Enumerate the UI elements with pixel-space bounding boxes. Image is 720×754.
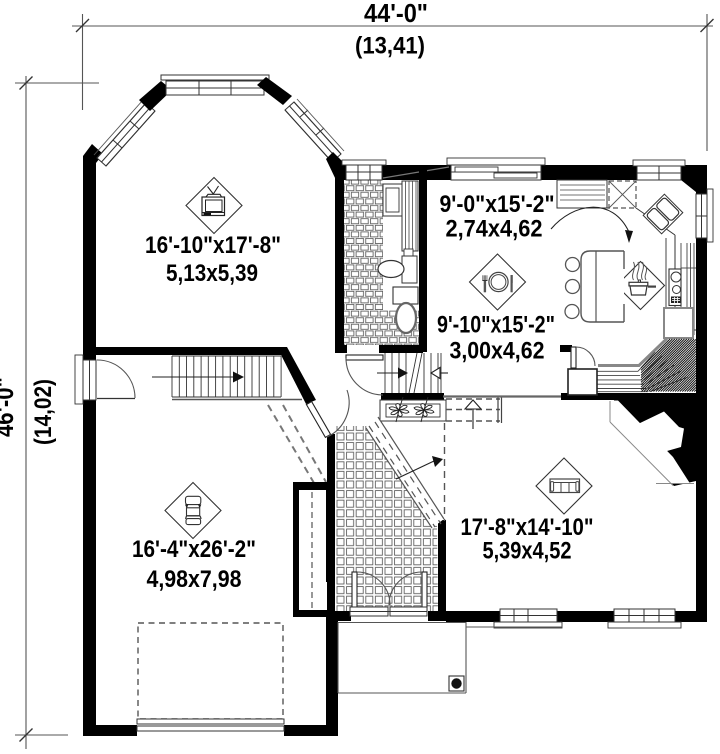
svg-text:5,39x4,52: 5,39x4,52 [483,538,572,565]
svg-text:2,74x4,62: 2,74x4,62 [446,216,543,243]
svg-text:(14,02): (14,02) [30,379,57,445]
svg-text:4,98x7,98: 4,98x7,98 [147,566,242,593]
svg-text:3,00x4,62: 3,00x4,62 [450,338,545,365]
svg-text:9'-10"x15'-2": 9'-10"x15'-2" [437,312,555,339]
svg-text:(13,41): (13,41) [355,33,425,60]
svg-text:46'-0": 46'-0" [0,377,19,437]
svg-text:16'-10"x17'-8": 16'-10"x17'-8" [145,232,281,259]
svg-text:44'-0": 44'-0" [364,0,428,28]
svg-text:5,13x5,39: 5,13x5,39 [166,260,258,287]
svg-text:9'-0"x15'-2": 9'-0"x15'-2" [440,191,555,218]
svg-text:16'-4"x26'-2": 16'-4"x26'-2" [132,536,256,563]
